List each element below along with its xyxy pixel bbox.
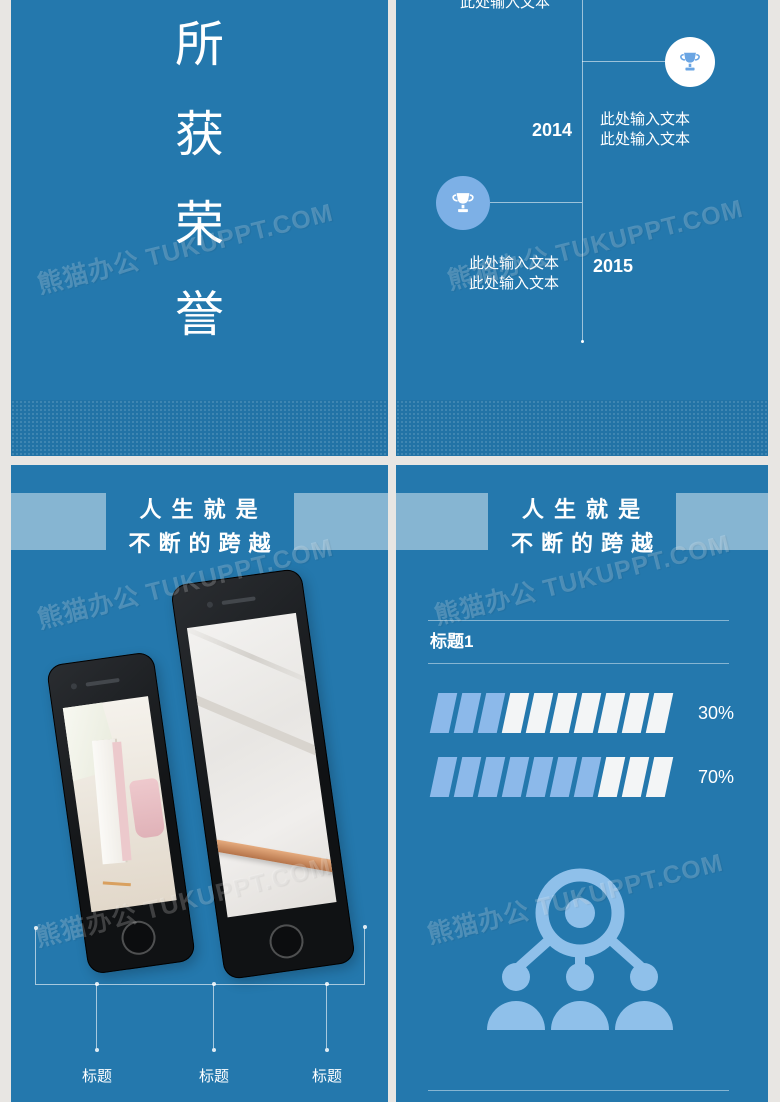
phone-screen-photo-desk: [63, 696, 177, 912]
timeline-desc: 此处输入文本 此处输入文本: [454, 254, 574, 294]
progress-percent-label: 70%: [686, 767, 746, 788]
title-char: 所: [175, 20, 224, 70]
photo-marble-edge: [189, 694, 334, 762]
bar-segment: [526, 693, 554, 733]
timeline-text-cut: 此处输入文本: [460, 0, 550, 12]
progress-percent-label: 30%: [686, 703, 746, 724]
timeline-desc-line: 此处输入文本: [454, 254, 574, 274]
bar-segment: [478, 757, 506, 797]
slide-timeline: 此处输入文本 2014 此处输入文本 此处输入文本: [396, 0, 768, 456]
smartphone-large: [170, 568, 356, 980]
bar-segment: [646, 693, 674, 733]
photo-pink-cup: [129, 778, 166, 839]
divider-line: [428, 1090, 729, 1091]
photo-copper-pen: [211, 839, 337, 875]
phone-caption: 标题: [62, 1065, 132, 1086]
phone-camera: [71, 683, 78, 690]
title-char: 获: [175, 110, 224, 160]
bar-segment: [574, 757, 602, 797]
bar-segment: [622, 693, 650, 733]
phone-caption: 标题: [179, 1065, 249, 1086]
org-network-icon: [476, 867, 684, 1033]
timeline-year: 2014: [492, 120, 572, 141]
bar-segment: [550, 757, 578, 797]
trophy-icon: [449, 189, 477, 217]
timeline-connector: [490, 202, 582, 203]
divider-line: [428, 620, 729, 621]
bar-segment: [430, 757, 458, 797]
bracket-line: [96, 984, 97, 1048]
bar-segment: [454, 693, 482, 733]
slide-title: 人 生 就 是 不断的跨越: [106, 485, 294, 557]
vertical-title: 所 获 荣 誉: [11, 20, 388, 340]
phone-home-button: [267, 922, 305, 960]
bar-segment: [574, 693, 602, 733]
bar-segment: [598, 693, 626, 733]
slide-phones: 人 生 就 是 不断的跨越: [11, 465, 388, 1102]
bracket-line: [326, 984, 327, 1048]
bracket-dot: [325, 1048, 329, 1052]
timeline-desc-line: 此处输入文本: [454, 274, 574, 294]
timeline-desc: 此处输入文本 此处输入文本: [600, 110, 690, 150]
phone-camera: [207, 601, 214, 608]
bar-segment: [502, 757, 530, 797]
trophy-circle-white: [665, 37, 715, 87]
timeline-desc-line: 此处输入文本: [600, 130, 690, 150]
title-char: 荣: [175, 200, 224, 250]
trophy-icon: [677, 49, 703, 75]
divider-line: [428, 663, 729, 664]
photo-pencil: [103, 882, 131, 887]
bar-segment: [550, 693, 578, 733]
timeline-connector: [582, 61, 665, 62]
phone-speaker: [222, 596, 256, 605]
section-title: 标题1: [430, 627, 473, 652]
bar-segment: [502, 693, 530, 733]
title-char: 誉: [175, 290, 224, 340]
timeline-axis: [582, 0, 583, 343]
bar-segment: [454, 757, 482, 797]
smartphone-small: [46, 651, 196, 975]
bracket-dot: [95, 1048, 99, 1052]
dotted-texture-band: [11, 400, 388, 456]
slide-title: 人 生 就 是 不断的跨越: [488, 485, 676, 557]
bracket-line: [364, 928, 365, 984]
phone-screen-photo-marble: [187, 613, 337, 917]
bar-segment: [598, 757, 626, 797]
bar-segment: [526, 757, 554, 797]
trophy-circle-blue: [436, 176, 490, 230]
bar-segment: [478, 693, 506, 733]
timeline-year: 2015: [593, 256, 633, 277]
slide-title-line1: 人 生 就 是: [106, 492, 294, 524]
bracket-dot: [212, 1048, 216, 1052]
ppt-template-preview: 所 获 荣 誉 此处输入文本 2014 此处输入文本 此处输入文本: [0, 0, 780, 1102]
bar-segment: [622, 757, 650, 797]
slide-title-line1: 人 生 就 是: [488, 492, 676, 524]
bar-segment: [430, 693, 458, 733]
bracket-line: [213, 984, 214, 1048]
slide-title-line2: 不断的跨越: [114, 526, 294, 558]
segmented-progress-bar: [434, 757, 669, 797]
dotted-texture-band: [396, 400, 768, 456]
slide-title-line2: 不断的跨越: [496, 526, 676, 558]
phone-caption: 标题: [292, 1065, 362, 1086]
bracket-line: [35, 984, 365, 985]
phone-speaker: [86, 678, 120, 687]
timeline-desc-line: 此处输入文本: [600, 110, 690, 130]
bar-segment: [646, 757, 674, 797]
photo-marble-vein: [187, 622, 329, 691]
segmented-progress-bar: [434, 693, 669, 733]
phone-home-button: [119, 919, 157, 957]
bracket-line: [35, 929, 36, 984]
slide-honors: 所 获 荣 誉: [11, 0, 388, 456]
slide-stats: 人 生 就 是 不断的跨越 标题1 30% 70%: [396, 465, 768, 1102]
